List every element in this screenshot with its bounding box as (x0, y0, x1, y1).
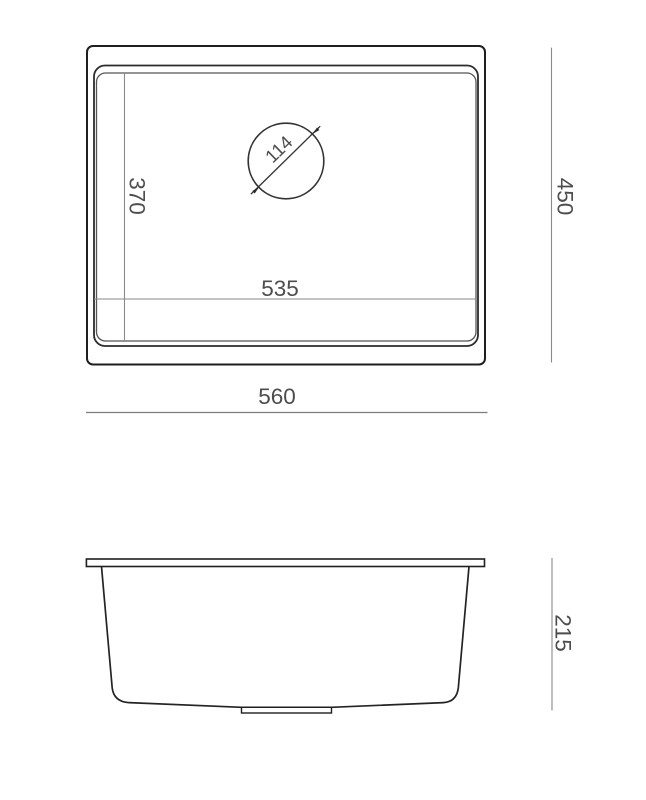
svg-text:450: 450 (553, 178, 578, 216)
svg-text:535: 535 (261, 276, 299, 301)
svg-text:370: 370 (125, 177, 150, 215)
svg-text:560: 560 (258, 384, 296, 409)
svg-text:215: 215 (551, 614, 576, 652)
